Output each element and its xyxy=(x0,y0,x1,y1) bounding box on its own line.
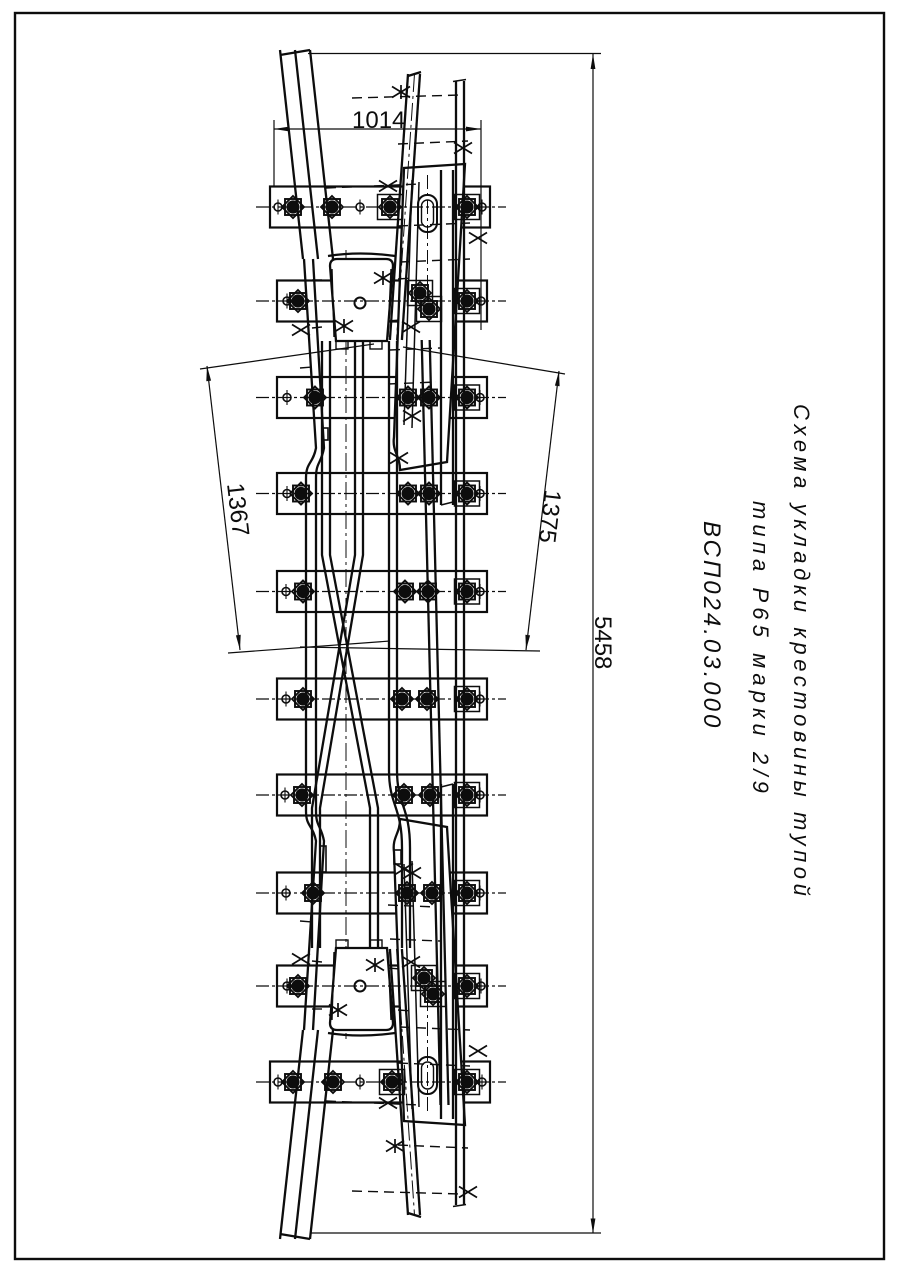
svg-text:Схема укладки крестовины тупой: Схема укладки крестовины тупой xyxy=(789,404,814,900)
svg-text:типа Р65 марки 2/9: типа Р65 марки 2/9 xyxy=(748,501,773,798)
svg-text:ВСП024.03.000: ВСП024.03.000 xyxy=(698,521,725,730)
svg-text:1375: 1375 xyxy=(533,488,566,544)
svg-text:5458: 5458 xyxy=(589,616,616,669)
svg-text:1014: 1014 xyxy=(352,107,405,134)
